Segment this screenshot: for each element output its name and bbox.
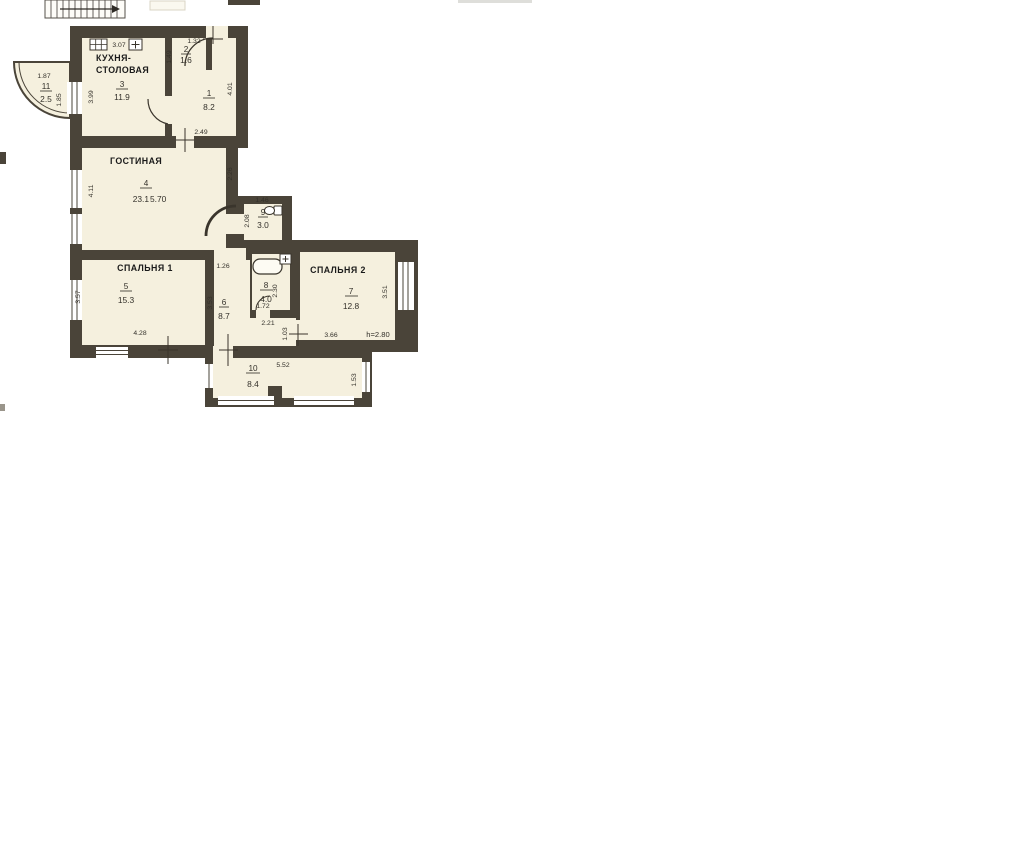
dim-bedroom2-bottom: 3.66 (324, 332, 337, 339)
entry-number: 2 (184, 45, 189, 54)
doorway-bathroom (256, 310, 270, 318)
scan-artifact-top (458, 0, 532, 3)
living-area: 23.1 (133, 194, 150, 204)
dim-loggia-top: 5.52 (276, 362, 289, 369)
doorway-kitchen (165, 96, 172, 124)
dim-kitchen-left: 3.99 (88, 90, 95, 103)
kitchen-name-line2: СТОЛОВАЯ (96, 65, 149, 75)
window-bedroom1-bottom (96, 347, 128, 358)
doorway-living-hall (214, 248, 246, 262)
dim-room1-bottom: 2.49 (194, 129, 207, 136)
loggia-area: 8.4 (247, 379, 259, 389)
bathroom-number: 8 (264, 281, 269, 290)
scan-artifact-left-2 (0, 404, 5, 411)
dim-living-left: 4.11 (88, 184, 95, 197)
window-living-2 (67, 214, 82, 244)
hallway-area: 8.7 (218, 311, 230, 321)
bedroom2-number: 7 (349, 287, 354, 296)
window-kitchen-balcony (67, 82, 82, 114)
balcony-area: 2.5 (40, 94, 52, 104)
ceiling-height-note: h=2.80 (366, 330, 389, 339)
living-width-note: 5.70 (150, 194, 167, 204)
window-loggia-bottom-1 (218, 396, 274, 405)
kitchen-area: 11.9 (114, 92, 130, 102)
landing-slab (150, 1, 185, 10)
dim-bath-right: 2.30 (272, 284, 279, 297)
bedroom1-number: 5 (124, 282, 129, 291)
bedroom1-name: СПАЛЬНЯ 1 (117, 263, 173, 273)
dim-balcony-top: 1.87 (37, 73, 50, 80)
doorway-wc (226, 214, 244, 234)
entry-area: 1.6 (180, 55, 192, 65)
dim-loggia-right: 1.53 (351, 373, 358, 386)
window-loggia-left (205, 364, 213, 388)
window-loggia-right (362, 362, 370, 392)
window-loggia-bottom-2 (294, 396, 354, 405)
dim-bath-bottom: 1.72 (256, 303, 269, 310)
doorway-entrance (206, 26, 228, 39)
toilet-icon (265, 206, 283, 215)
dim-balcony-right: 1.85 (56, 93, 63, 106)
stairwell (45, 0, 125, 18)
electric-panel-icon (129, 39, 142, 50)
dim-bedroom2-right: 3.51 (382, 285, 389, 298)
bathtub-icon (253, 259, 282, 274)
wc-number: 9 (261, 208, 266, 217)
dim-wc-top: 1.46 (255, 197, 268, 204)
kitchen-number: 3 (120, 80, 125, 89)
living-name: ГОСТИНАЯ (110, 156, 162, 166)
dim-room1-right: 4.01 (227, 82, 234, 95)
window-living-1 (67, 170, 82, 208)
room1-area: 8.2 (203, 102, 215, 112)
doorway-loggia (213, 346, 233, 358)
window-bedroom2-right (398, 262, 414, 310)
scan-artifact-wall-top (228, 0, 260, 5)
dim-kitchen-top: 3.07 (112, 42, 125, 49)
kitchen-name-line1: КУХНЯ- (96, 53, 131, 63)
bedroom2-area: 12.8 (343, 301, 360, 311)
dim-bedroom1-bottom: 4.28 (133, 330, 146, 337)
dim-bedroom1-left: 3.57 (75, 290, 82, 303)
vent-shaft-icon (90, 39, 107, 50)
hallway-number: 6 (222, 298, 227, 307)
dim-wc-left: 2.08 (244, 214, 251, 227)
dim-entry-left: 1.49 (166, 50, 173, 63)
room1-number: 1 (207, 89, 212, 98)
scan-artifact-left (0, 152, 6, 164)
bedroom2-name: СПАЛЬНЯ 2 (310, 265, 366, 275)
dim-entry-top: 1.32 (187, 38, 200, 45)
balcony-number: 11 (42, 82, 51, 91)
floor-plan: КУХНЯ- СТОЛОВАЯ 3 11.9 3.07 3.99 1.32 2 … (0, 0, 1024, 858)
living-number: 4 (144, 179, 149, 188)
dim-living-right: 2.26 (227, 167, 234, 180)
room-hallway (214, 260, 250, 346)
dim-corridor-left: 1.03 (282, 327, 289, 340)
dim-hall-left: 3.53 (207, 296, 214, 309)
plus-box-icon (280, 254, 291, 264)
dim-hall-top: 1.26 (216, 263, 229, 270)
bedroom1-area: 15.3 (118, 295, 135, 305)
dim-bath-below: 2.21 (261, 320, 274, 327)
loggia-number: 10 (248, 364, 258, 373)
wc-area: 3.0 (257, 220, 269, 230)
scanned-page: КУХНЯ- СТОЛОВАЯ 3 11.9 3.07 3.99 1.32 2 … (0, 0, 1024, 858)
